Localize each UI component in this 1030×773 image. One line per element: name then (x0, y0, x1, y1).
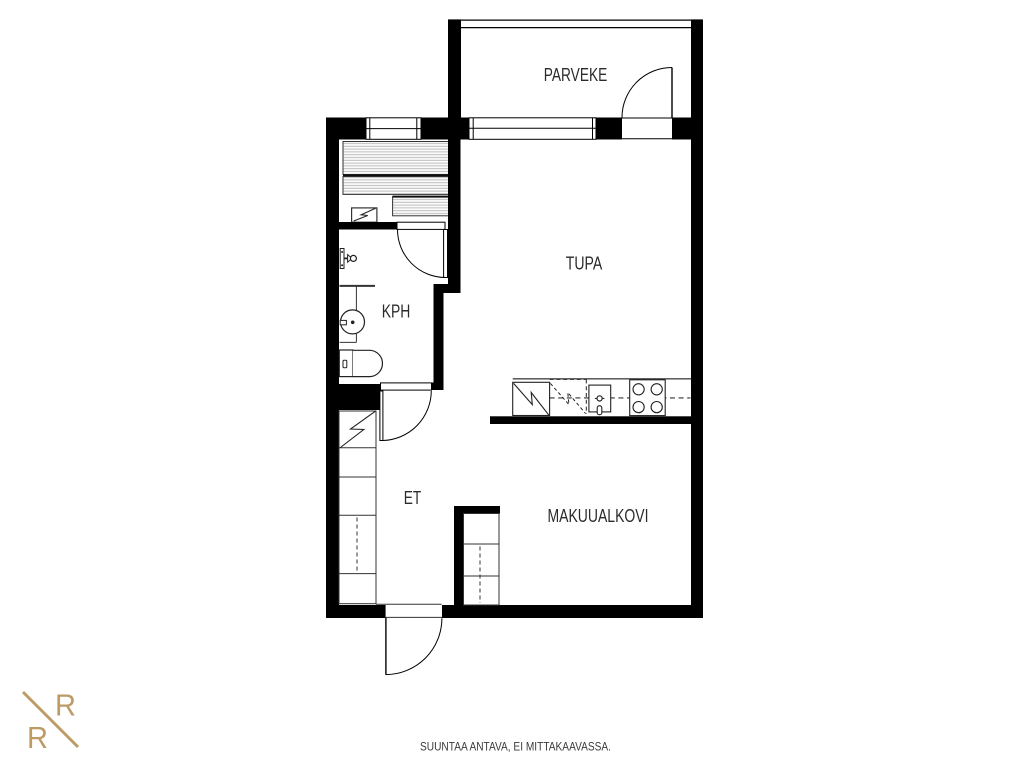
svg-text:SUUNTAA ANTAVA, EI MITTAKAAVAS: SUUNTAA ANTAVA, EI MITTAKAAVASSA. (420, 740, 611, 754)
svg-text:R: R (27, 720, 48, 755)
svg-text:R: R (55, 687, 76, 722)
svg-text:ET: ET (404, 488, 422, 508)
svg-text:TUPA: TUPA (566, 254, 603, 274)
svg-text:PARVEKE: PARVEKE (544, 65, 608, 85)
svg-text:KPH: KPH (382, 302, 411, 322)
svg-text:MAKUUALKOVI: MAKUUALKOVI (548, 506, 649, 526)
